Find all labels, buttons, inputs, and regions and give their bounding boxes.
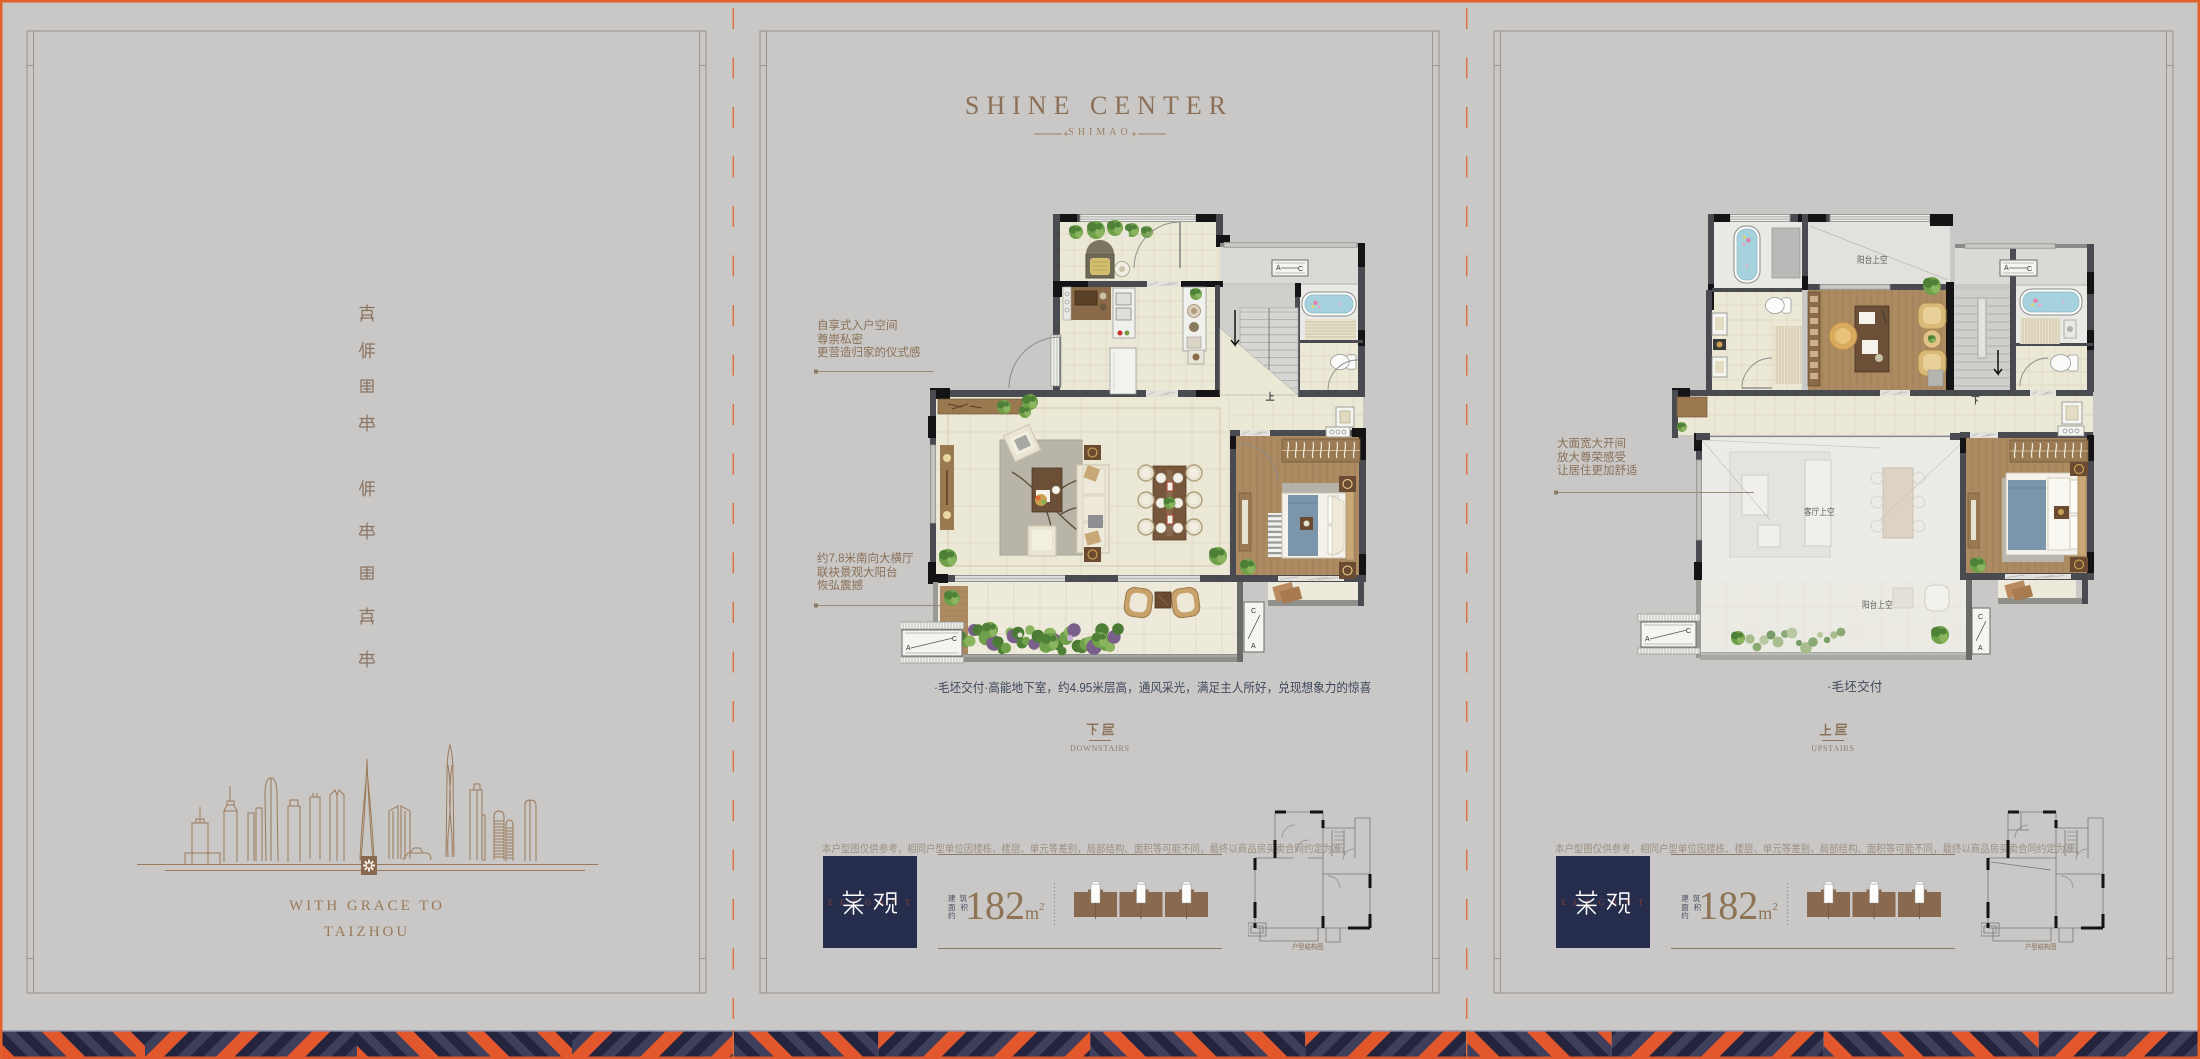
svg-text:A: A <box>1251 643 1256 650</box>
svg-text:C: C <box>1298 266 1303 273</box>
svg-text:C: C <box>1251 608 1256 615</box>
svg-text:A: A <box>2004 265 2009 272</box>
svg-text:A: A <box>1978 645 1983 652</box>
svg-text:A: A <box>906 645 911 652</box>
svg-text:C: C <box>1686 628 1691 635</box>
svg-text:A: A <box>1645 636 1650 643</box>
svg-text:C: C <box>952 636 957 643</box>
svg-text:C: C <box>2027 266 2032 273</box>
svg-text:A: A <box>1276 265 1281 272</box>
svg-text:C: C <box>1978 614 1983 621</box>
